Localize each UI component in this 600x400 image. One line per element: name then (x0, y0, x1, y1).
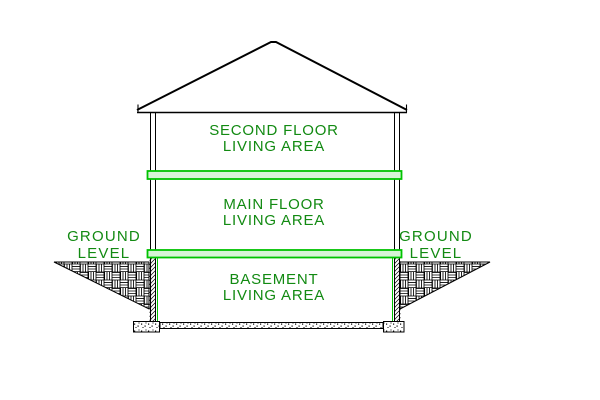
footing-left (134, 322, 160, 333)
main-floor-label-line1: MAIN FLOOR (223, 196, 324, 213)
basement-wall-hatch-left (150, 258, 157, 322)
ground-level-right-label-line2: LEVEL (410, 245, 463, 262)
ground-hatch-left (54, 262, 149, 309)
ground-level-right-label-line1: GROUND (399, 228, 473, 245)
main-floor-label-line2: LIVING AREA (223, 212, 325, 229)
canvas: SECOND FLOOR LIVING AREA MAIN FLOOR LIVI… (0, 0, 600, 400)
basement-ceiling-band (148, 250, 402, 258)
ground-level-left-label-line1: GROUND (67, 228, 141, 245)
basement-label-line1: BASEMENT (230, 271, 319, 288)
roof-outline (137, 42, 407, 110)
second-floor-label-line2: LIVING AREA (223, 138, 325, 155)
house-cross-section: SECOND FLOOR LIVING AREA MAIN FLOOR LIVI… (0, 0, 600, 400)
basement-label-line2: LIVING AREA (223, 287, 325, 304)
roof (137, 42, 407, 113)
second-floor-band (148, 171, 402, 179)
ground-level-left-label-line2: LEVEL (78, 245, 131, 262)
basement-slab (160, 323, 383, 329)
footing-right (384, 322, 405, 333)
ground-hatch-right (400, 262, 490, 309)
eave-fascia-ticks (138, 105, 407, 113)
second-floor-label-line1: SECOND FLOOR (209, 122, 339, 139)
